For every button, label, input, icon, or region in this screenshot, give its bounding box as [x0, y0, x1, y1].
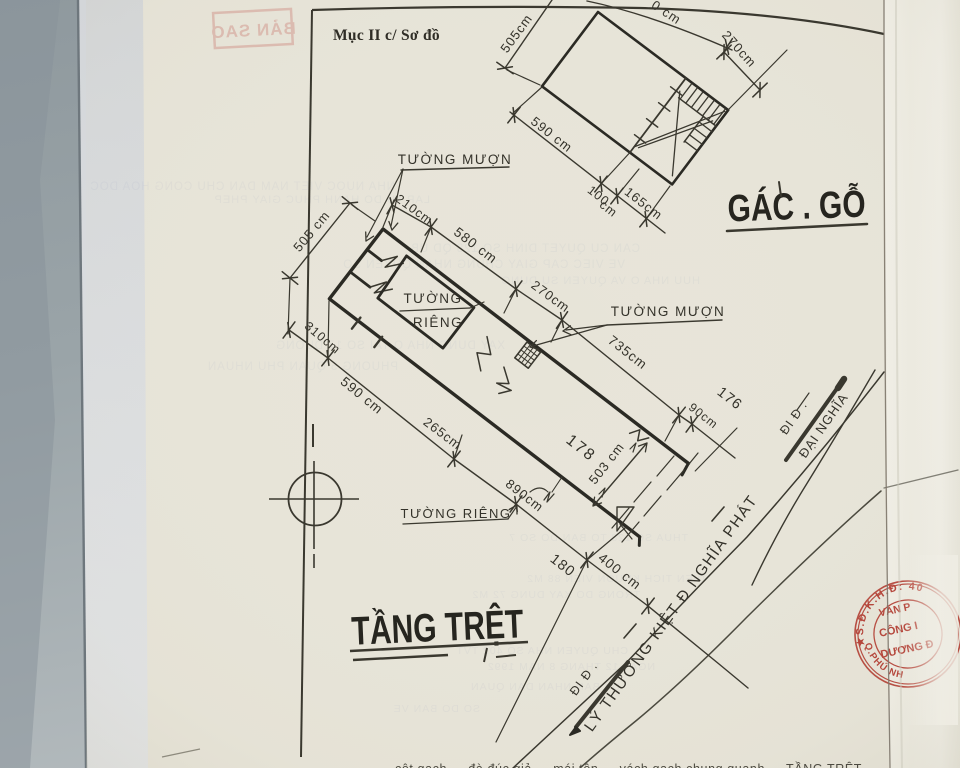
svg-text:NHA NUOC VIET NAM DAN CHU CONG: NHA NUOC VIET NAM DAN CHU CONG HOA DOC: [89, 181, 395, 193]
svg-text:TƯỜNG MƯỢN: TƯỜNG MƯỢN: [611, 304, 725, 319]
svg-text:UY BAN NHAN DAN QUAN: UY BAN NHAN DAN QUAN: [470, 681, 620, 693]
svg-text:CAN CU QUYET DINH SO 128 QD UB: CAN CU QUYET DINH SO 128 QD UB: [410, 243, 640, 255]
svg-text:GÁC . GỖ: GÁC . GỖ: [727, 181, 866, 231]
svg-text:THUA SO 128 TO BAN DO SO 7: THUA SO 128 TO BAN DO SO 7: [508, 532, 688, 544]
svg-text:PHUONG 5 QUAN PHU NHUAN: PHUONG 5 QUAN PHU NHUAN: [207, 361, 398, 373]
svg-text:RIÊNG: RIÊNG: [413, 315, 463, 330]
svg-text:TƯỜNG RIÊNG: TƯỜNG RIÊNG: [401, 506, 512, 521]
svg-text:TƯỜNG: TƯỜNG: [403, 291, 462, 306]
svg-text:cột gạch — đà đúc giả — mái tô: cột gạch — đà đúc giả — mái tôn — vách g…: [395, 761, 862, 768]
svg-text:Mục II c/ Sơ đồ: Mục II c/ Sơ đồ: [333, 27, 440, 44]
svg-text:TƯỜNG MƯỢN: TƯỜNG MƯỢN: [398, 152, 512, 167]
svg-text:SO DO BAN VE: SO DO BAN VE: [393, 703, 480, 715]
svg-text:TRONG DO XAY DUNG 72 M2: TRONG DO XAY DUNG 72 M2: [472, 589, 640, 601]
